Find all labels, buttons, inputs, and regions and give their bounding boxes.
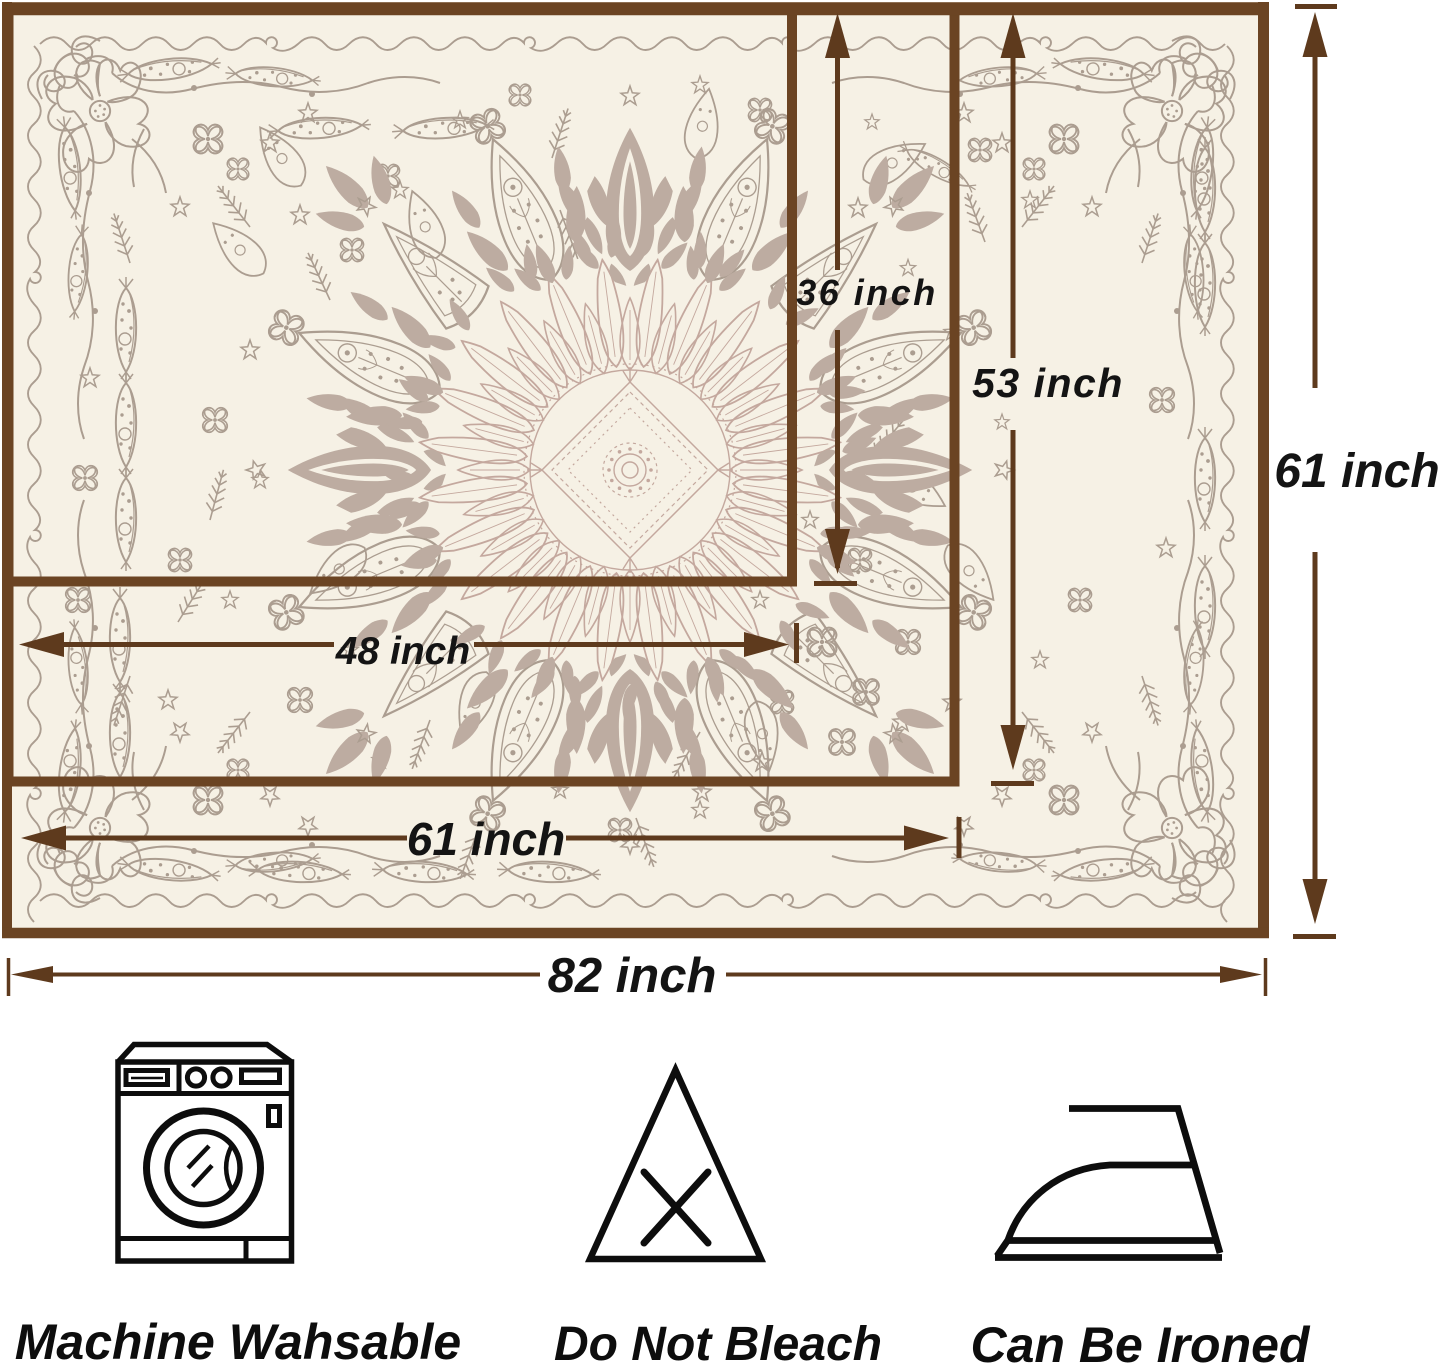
svg-text:Do Not Bleach: Do Not Bleach	[554, 1318, 882, 1366]
svg-text:82 inch: 82 inch	[548, 949, 717, 1003]
svg-text:48 inch: 48 inch	[335, 630, 470, 673]
svg-text:61 inch: 61 inch	[407, 813, 566, 865]
svg-text:Machine Wahsable: Machine Wahsable	[15, 1314, 461, 1366]
svg-text:Can Be Ironed: Can Be Ironed	[971, 1317, 1311, 1366]
svg-text:61 inch: 61 inch	[1274, 445, 1439, 498]
svg-text:53 inch: 53 inch	[972, 360, 1124, 406]
svg-text:36 inch: 36 inch	[796, 272, 938, 313]
